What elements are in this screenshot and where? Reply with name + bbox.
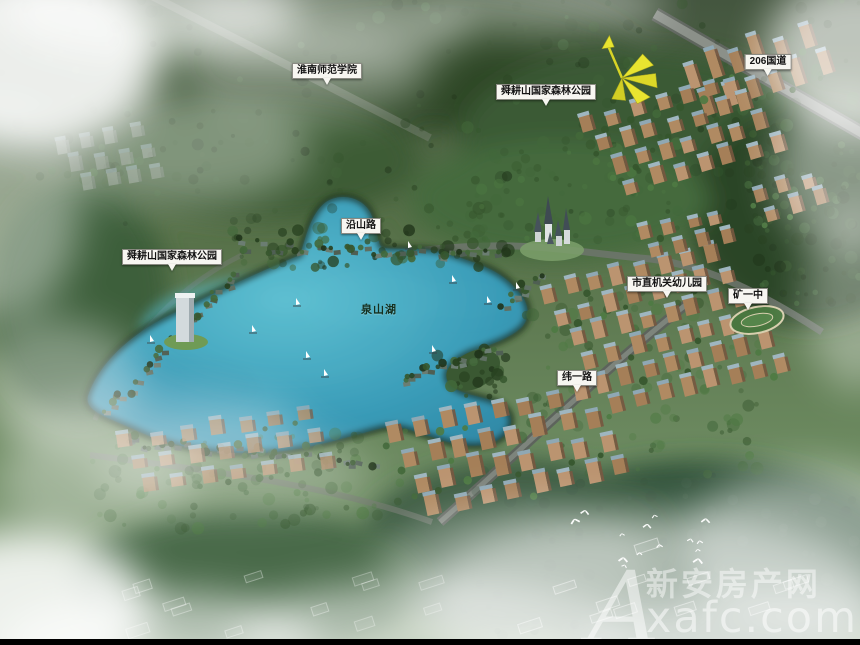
lake-name-label: 泉山湖 xyxy=(361,301,397,317)
masterplan-rendering: 淮南师范学院舜耕山国家森林公园206国道舜耕山国家森林公园沿山路市直机关幼儿园矿… xyxy=(0,0,860,645)
aerial-scene xyxy=(0,0,860,645)
letterbox-bar xyxy=(0,639,860,645)
